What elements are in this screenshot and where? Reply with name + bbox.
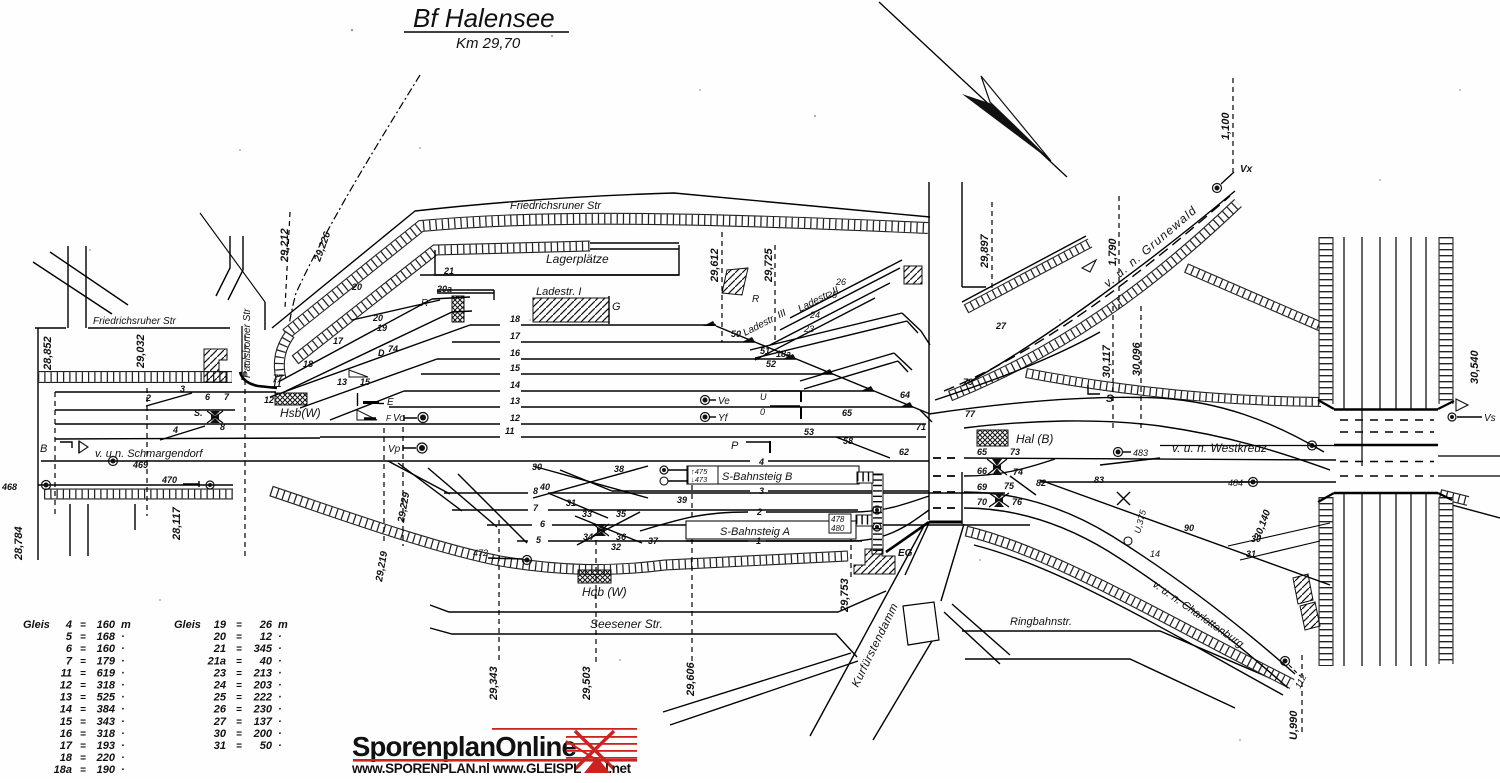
- svg-text:=: =: [80, 753, 86, 764]
- svg-text:31: 31: [566, 498, 576, 508]
- svg-text:15: 15: [60, 716, 73, 728]
- svg-text:318: 318: [97, 680, 116, 692]
- svg-text:29,753: 29,753: [839, 578, 851, 613]
- svg-text:28,852: 28,852: [42, 336, 54, 371]
- svg-text:12: 12: [264, 395, 274, 405]
- svg-text:24: 24: [809, 310, 820, 320]
- svg-text:29,897: 29,897: [979, 233, 991, 269]
- svg-text:Ringbahnstr.: Ringbahnstr.: [1010, 616, 1072, 628]
- svg-text:E: E: [387, 397, 394, 408]
- svg-text:31: 31: [214, 740, 226, 752]
- svg-text:29,032: 29,032: [135, 334, 147, 369]
- svg-text:8: 8: [220, 422, 225, 432]
- svg-text:200: 200: [253, 728, 273, 740]
- svg-text:17: 17: [510, 331, 521, 341]
- svg-text:619: 619: [97, 667, 116, 679]
- svg-text:13: 13: [510, 396, 520, 406]
- svg-text:478: 478: [831, 515, 845, 524]
- svg-text:20: 20: [213, 631, 227, 643]
- svg-text:40: 40: [539, 482, 550, 492]
- svg-text:=: =: [236, 741, 242, 752]
- svg-text:S-Bahnsteig B: S-Bahnsteig B: [722, 471, 792, 483]
- svg-text:37: 37: [648, 536, 659, 546]
- svg-text:73: 73: [1010, 447, 1020, 457]
- svg-text:480: 480: [831, 524, 845, 533]
- svg-text:7: 7: [66, 655, 73, 667]
- svg-text:17: 17: [333, 336, 344, 346]
- svg-text:168: 168: [97, 631, 116, 643]
- svg-text:25: 25: [213, 692, 227, 704]
- svg-text:·: ·: [121, 716, 125, 728]
- svg-text:17: 17: [60, 740, 73, 752]
- svg-text:Seesener Str.: Seesener Str.: [590, 617, 663, 631]
- svg-text:484: 484: [1228, 478, 1243, 488]
- svg-text:472: 472: [473, 548, 488, 558]
- svg-text:=: =: [236, 729, 242, 740]
- svg-text:21: 21: [443, 266, 454, 276]
- svg-text:B: B: [40, 443, 47, 455]
- svg-text:345: 345: [254, 643, 273, 655]
- svg-text:=: =: [80, 681, 86, 692]
- svg-text:U: U: [760, 392, 767, 402]
- svg-text:193: 193: [97, 740, 115, 752]
- svg-text:S: S: [1106, 393, 1114, 405]
- svg-text:220: 220: [96, 752, 116, 764]
- svg-text:8: 8: [533, 486, 538, 496]
- svg-text:29,343: 29,343: [488, 666, 500, 701]
- svg-text:15: 15: [510, 363, 521, 373]
- svg-text:=: =: [80, 693, 86, 704]
- svg-text:Ladestr. I: Ladestr. I: [536, 286, 581, 298]
- svg-text:Bf Halensee: Bf Halensee: [413, 3, 555, 33]
- svg-text:=: =: [80, 741, 86, 752]
- svg-text:=: =: [236, 705, 242, 716]
- svg-text:Gleis: Gleis: [174, 619, 201, 631]
- svg-text:34: 34: [583, 532, 593, 542]
- svg-text:=: =: [80, 717, 86, 728]
- svg-text:33: 33: [582, 509, 592, 519]
- svg-text:39: 39: [677, 495, 687, 505]
- svg-text:343: 343: [97, 716, 115, 728]
- svg-text:28,117: 28,117: [171, 506, 183, 541]
- svg-text:23: 23: [213, 667, 226, 679]
- svg-text:469: 469: [132, 460, 148, 470]
- svg-text:50: 50: [260, 740, 273, 752]
- svg-text:66: 66: [977, 466, 988, 476]
- svg-text:203: 203: [253, 680, 272, 692]
- svg-text:·: ·: [121, 740, 125, 752]
- svg-text:213: 213: [253, 667, 272, 679]
- svg-text:P: P: [731, 440, 739, 452]
- svg-text:S.: S.: [194, 408, 203, 418]
- svg-text:=: =: [236, 681, 242, 692]
- svg-text:12: 12: [510, 413, 520, 423]
- svg-text:Vs: Vs: [1484, 413, 1496, 424]
- svg-text:20: 20: [372, 313, 383, 323]
- svg-text:230: 230: [253, 704, 273, 716]
- svg-text:18: 18: [60, 752, 73, 764]
- svg-text:=: =: [80, 668, 86, 679]
- svg-text:27: 27: [213, 716, 227, 728]
- svg-text:35: 35: [616, 509, 627, 519]
- svg-text:Friedrichsruner Str: Friedrichsruner Str: [510, 200, 602, 212]
- svg-text:179: 179: [97, 655, 116, 667]
- svg-text:G: G: [612, 301, 621, 313]
- svg-text:20: 20: [351, 282, 362, 292]
- svg-text:190: 190: [97, 764, 116, 776]
- svg-text:·: ·: [121, 655, 125, 667]
- svg-text:U,990: U,990: [1288, 710, 1300, 740]
- svg-text:160: 160: [97, 643, 116, 655]
- svg-text:·: ·: [121, 692, 125, 704]
- svg-text:30,540: 30,540: [1469, 349, 1481, 384]
- svg-text:=: =: [80, 705, 86, 716]
- svg-text:Gleis: Gleis: [23, 619, 50, 631]
- svg-text:318: 318: [97, 728, 116, 740]
- svg-text:74: 74: [1013, 467, 1023, 477]
- svg-text:6: 6: [66, 643, 73, 655]
- svg-text:3: 3: [759, 486, 764, 496]
- svg-text:R: R: [752, 294, 759, 305]
- svg-text:Hsb(W): Hsb(W): [280, 406, 321, 420]
- svg-text:4: 4: [758, 457, 764, 467]
- svg-text:12: 12: [60, 680, 72, 692]
- svg-text:Yf: Yf: [718, 413, 729, 424]
- svg-text:·: ·: [278, 704, 282, 716]
- svg-text:1,100: 1,100: [1220, 112, 1232, 140]
- svg-text:=: =: [236, 717, 242, 728]
- svg-text:1,790: 1,790: [1107, 238, 1119, 266]
- svg-text:69: 69: [977, 482, 987, 492]
- svg-text:26: 26: [259, 619, 273, 631]
- svg-text:30: 30: [1251, 534, 1261, 544]
- svg-text:v. u.n. Schmargendorf: v. u.n. Schmargendorf: [95, 448, 203, 460]
- svg-text:Vx: Vx: [1240, 164, 1253, 175]
- svg-text:13: 13: [337, 377, 347, 387]
- svg-text:↓473: ↓473: [691, 475, 708, 484]
- svg-text:·: ·: [278, 680, 282, 692]
- svg-text:29,725: 29,725: [763, 247, 775, 283]
- svg-text:29,606: 29,606: [685, 661, 697, 697]
- svg-text:13: 13: [60, 692, 72, 704]
- svg-text:Friedrichsruher Str: Friedrichsruher Str: [93, 316, 176, 327]
- svg-text:Km 29,70: Km 29,70: [456, 35, 521, 52]
- svg-text:38: 38: [614, 464, 624, 474]
- svg-text:3: 3: [180, 384, 185, 394]
- svg-text:·: ·: [121, 643, 125, 655]
- svg-text:=: =: [236, 668, 242, 679]
- svg-text:14: 14: [60, 704, 72, 716]
- svg-text:=: =: [80, 765, 86, 776]
- svg-text:52: 52: [766, 359, 776, 369]
- svg-text:26: 26: [835, 277, 846, 287]
- svg-text:=: =: [80, 644, 86, 655]
- svg-text:26: 26: [213, 704, 227, 716]
- svg-text:79: 79: [963, 377, 973, 387]
- svg-text:75: 75: [1004, 481, 1015, 491]
- svg-text:82: 82: [1036, 478, 1046, 488]
- svg-text:Lagerplätze: Lagerplätze: [546, 252, 609, 266]
- svg-text:18: 18: [303, 359, 313, 369]
- svg-text:16: 16: [510, 348, 521, 358]
- svg-text:=: =: [80, 656, 86, 667]
- svg-text:Ve: Ve: [718, 396, 730, 407]
- svg-text:·: ·: [121, 704, 125, 716]
- svg-text:21a: 21a: [207, 655, 226, 667]
- svg-text:·: ·: [121, 728, 125, 740]
- svg-text:·: ·: [278, 667, 282, 679]
- svg-text:12: 12: [260, 631, 272, 643]
- svg-text:Hqb (W): Hqb (W): [582, 585, 627, 599]
- svg-text:19: 19: [214, 619, 227, 631]
- svg-text:64: 64: [900, 390, 910, 400]
- svg-text:77: 77: [273, 373, 284, 383]
- svg-text:=: =: [80, 620, 86, 631]
- svg-text:29,212: 29,212: [279, 228, 291, 263]
- svg-text:470: 470: [161, 475, 177, 485]
- svg-text:·: ·: [278, 643, 282, 655]
- svg-text:·: ·: [278, 716, 282, 728]
- svg-text:14: 14: [510, 380, 520, 390]
- svg-text:65: 65: [977, 447, 988, 457]
- svg-text:11: 11: [505, 426, 514, 436]
- svg-text:D: D: [378, 348, 385, 358]
- svg-text:2: 2: [756, 507, 762, 517]
- svg-text:30,117: 30,117: [1101, 344, 1113, 378]
- svg-text:16: 16: [60, 728, 73, 740]
- svg-text:50: 50: [731, 329, 741, 339]
- svg-text:·: ·: [278, 631, 282, 643]
- svg-text:525: 525: [97, 692, 116, 704]
- svg-text:29,503: 29,503: [581, 666, 593, 701]
- svg-text:5: 5: [66, 631, 73, 643]
- svg-text:4: 4: [65, 619, 72, 631]
- svg-text:24: 24: [213, 680, 226, 692]
- svg-text:18a: 18a: [776, 349, 791, 359]
- svg-text:·: ·: [278, 740, 282, 752]
- svg-text:90: 90: [1184, 523, 1194, 533]
- svg-text:76: 76: [1012, 497, 1023, 507]
- svg-text:51: 51: [760, 346, 770, 356]
- svg-text:www.SPORENPLAN.nl www.GLEISPL: www.SPORENPLAN.nl www.GLEISPL: [351, 761, 581, 776]
- svg-text:14: 14: [1150, 549, 1160, 559]
- svg-text:18a: 18a: [54, 764, 72, 776]
- svg-text:Vp: Vp: [388, 444, 401, 455]
- svg-text:11: 11: [61, 667, 72, 679]
- svg-text:74: 74: [388, 344, 398, 354]
- svg-text:23: 23: [803, 324, 814, 334]
- svg-text:m: m: [121, 619, 131, 631]
- svg-text:SporenplanOnline: SporenplanOnline: [352, 731, 577, 762]
- svg-text:v. u. n. Westkreuz: v. u. n. Westkreuz: [1172, 441, 1267, 455]
- svg-text:30: 30: [532, 462, 542, 472]
- svg-text:=: =: [236, 632, 242, 643]
- svg-text:·: ·: [121, 680, 125, 692]
- svg-text:·: ·: [278, 728, 282, 740]
- svg-text:·: ·: [121, 764, 125, 776]
- svg-text:28,784: 28,784: [13, 526, 25, 561]
- svg-text:31: 31: [1246, 549, 1256, 559]
- svg-text:71: 71: [916, 422, 926, 432]
- svg-text:32: 32: [611, 542, 621, 552]
- svg-text:=: =: [236, 644, 242, 655]
- svg-text:=: =: [80, 729, 86, 740]
- svg-text:27: 27: [995, 321, 1007, 331]
- svg-text:222: 222: [253, 692, 272, 704]
- svg-text:0: 0: [760, 407, 765, 417]
- svg-text:18: 18: [510, 314, 520, 324]
- svg-text:29,612: 29,612: [709, 248, 721, 283]
- svg-text:30: 30: [214, 728, 227, 740]
- svg-text:Hal (B): Hal (B): [1016, 432, 1053, 446]
- svg-text:58: 58: [843, 436, 853, 446]
- svg-text:483: 483: [1133, 448, 1148, 458]
- svg-text:·: ·: [121, 752, 125, 764]
- svg-text:=: =: [236, 693, 242, 704]
- svg-text:77: 77: [965, 409, 976, 419]
- svg-text:53: 53: [804, 427, 814, 437]
- svg-text:70: 70: [977, 497, 987, 507]
- svg-text:·: ·: [278, 692, 282, 704]
- svg-text:1: 1: [756, 536, 761, 546]
- svg-text:15: 15: [360, 377, 371, 387]
- svg-text:384: 384: [97, 704, 115, 716]
- svg-text:20a: 20a: [436, 284, 452, 294]
- svg-text:·: ·: [121, 667, 125, 679]
- svg-text:137: 137: [254, 716, 273, 728]
- svg-text:19: 19: [377, 323, 387, 333]
- svg-text:EG: EG: [898, 548, 913, 559]
- svg-text:=: =: [80, 632, 86, 643]
- svg-text:21: 21: [213, 643, 226, 655]
- svg-text:468: 468: [1, 482, 17, 492]
- svg-text:m: m: [278, 619, 288, 631]
- svg-text:65: 65: [842, 408, 853, 418]
- svg-text:4: 4: [172, 425, 178, 435]
- svg-text:=: =: [236, 620, 242, 631]
- svg-text:·: ·: [121, 631, 125, 643]
- svg-text:·: ·: [278, 655, 282, 667]
- svg-text:62: 62: [899, 447, 909, 457]
- svg-text:83: 83: [1094, 475, 1104, 485]
- svg-text:30,096: 30,096: [1131, 341, 1143, 376]
- svg-text:Paulsborner Str: Paulsborner Str: [242, 308, 253, 378]
- svg-text:40: 40: [259, 655, 273, 667]
- svg-text:2: 2: [145, 393, 151, 403]
- svg-text:160: 160: [97, 619, 116, 631]
- svg-text:36: 36: [616, 532, 627, 542]
- svg-text:=: =: [236, 656, 242, 667]
- svg-text:S-Bahnsteig A: S-Bahnsteig A: [720, 526, 790, 538]
